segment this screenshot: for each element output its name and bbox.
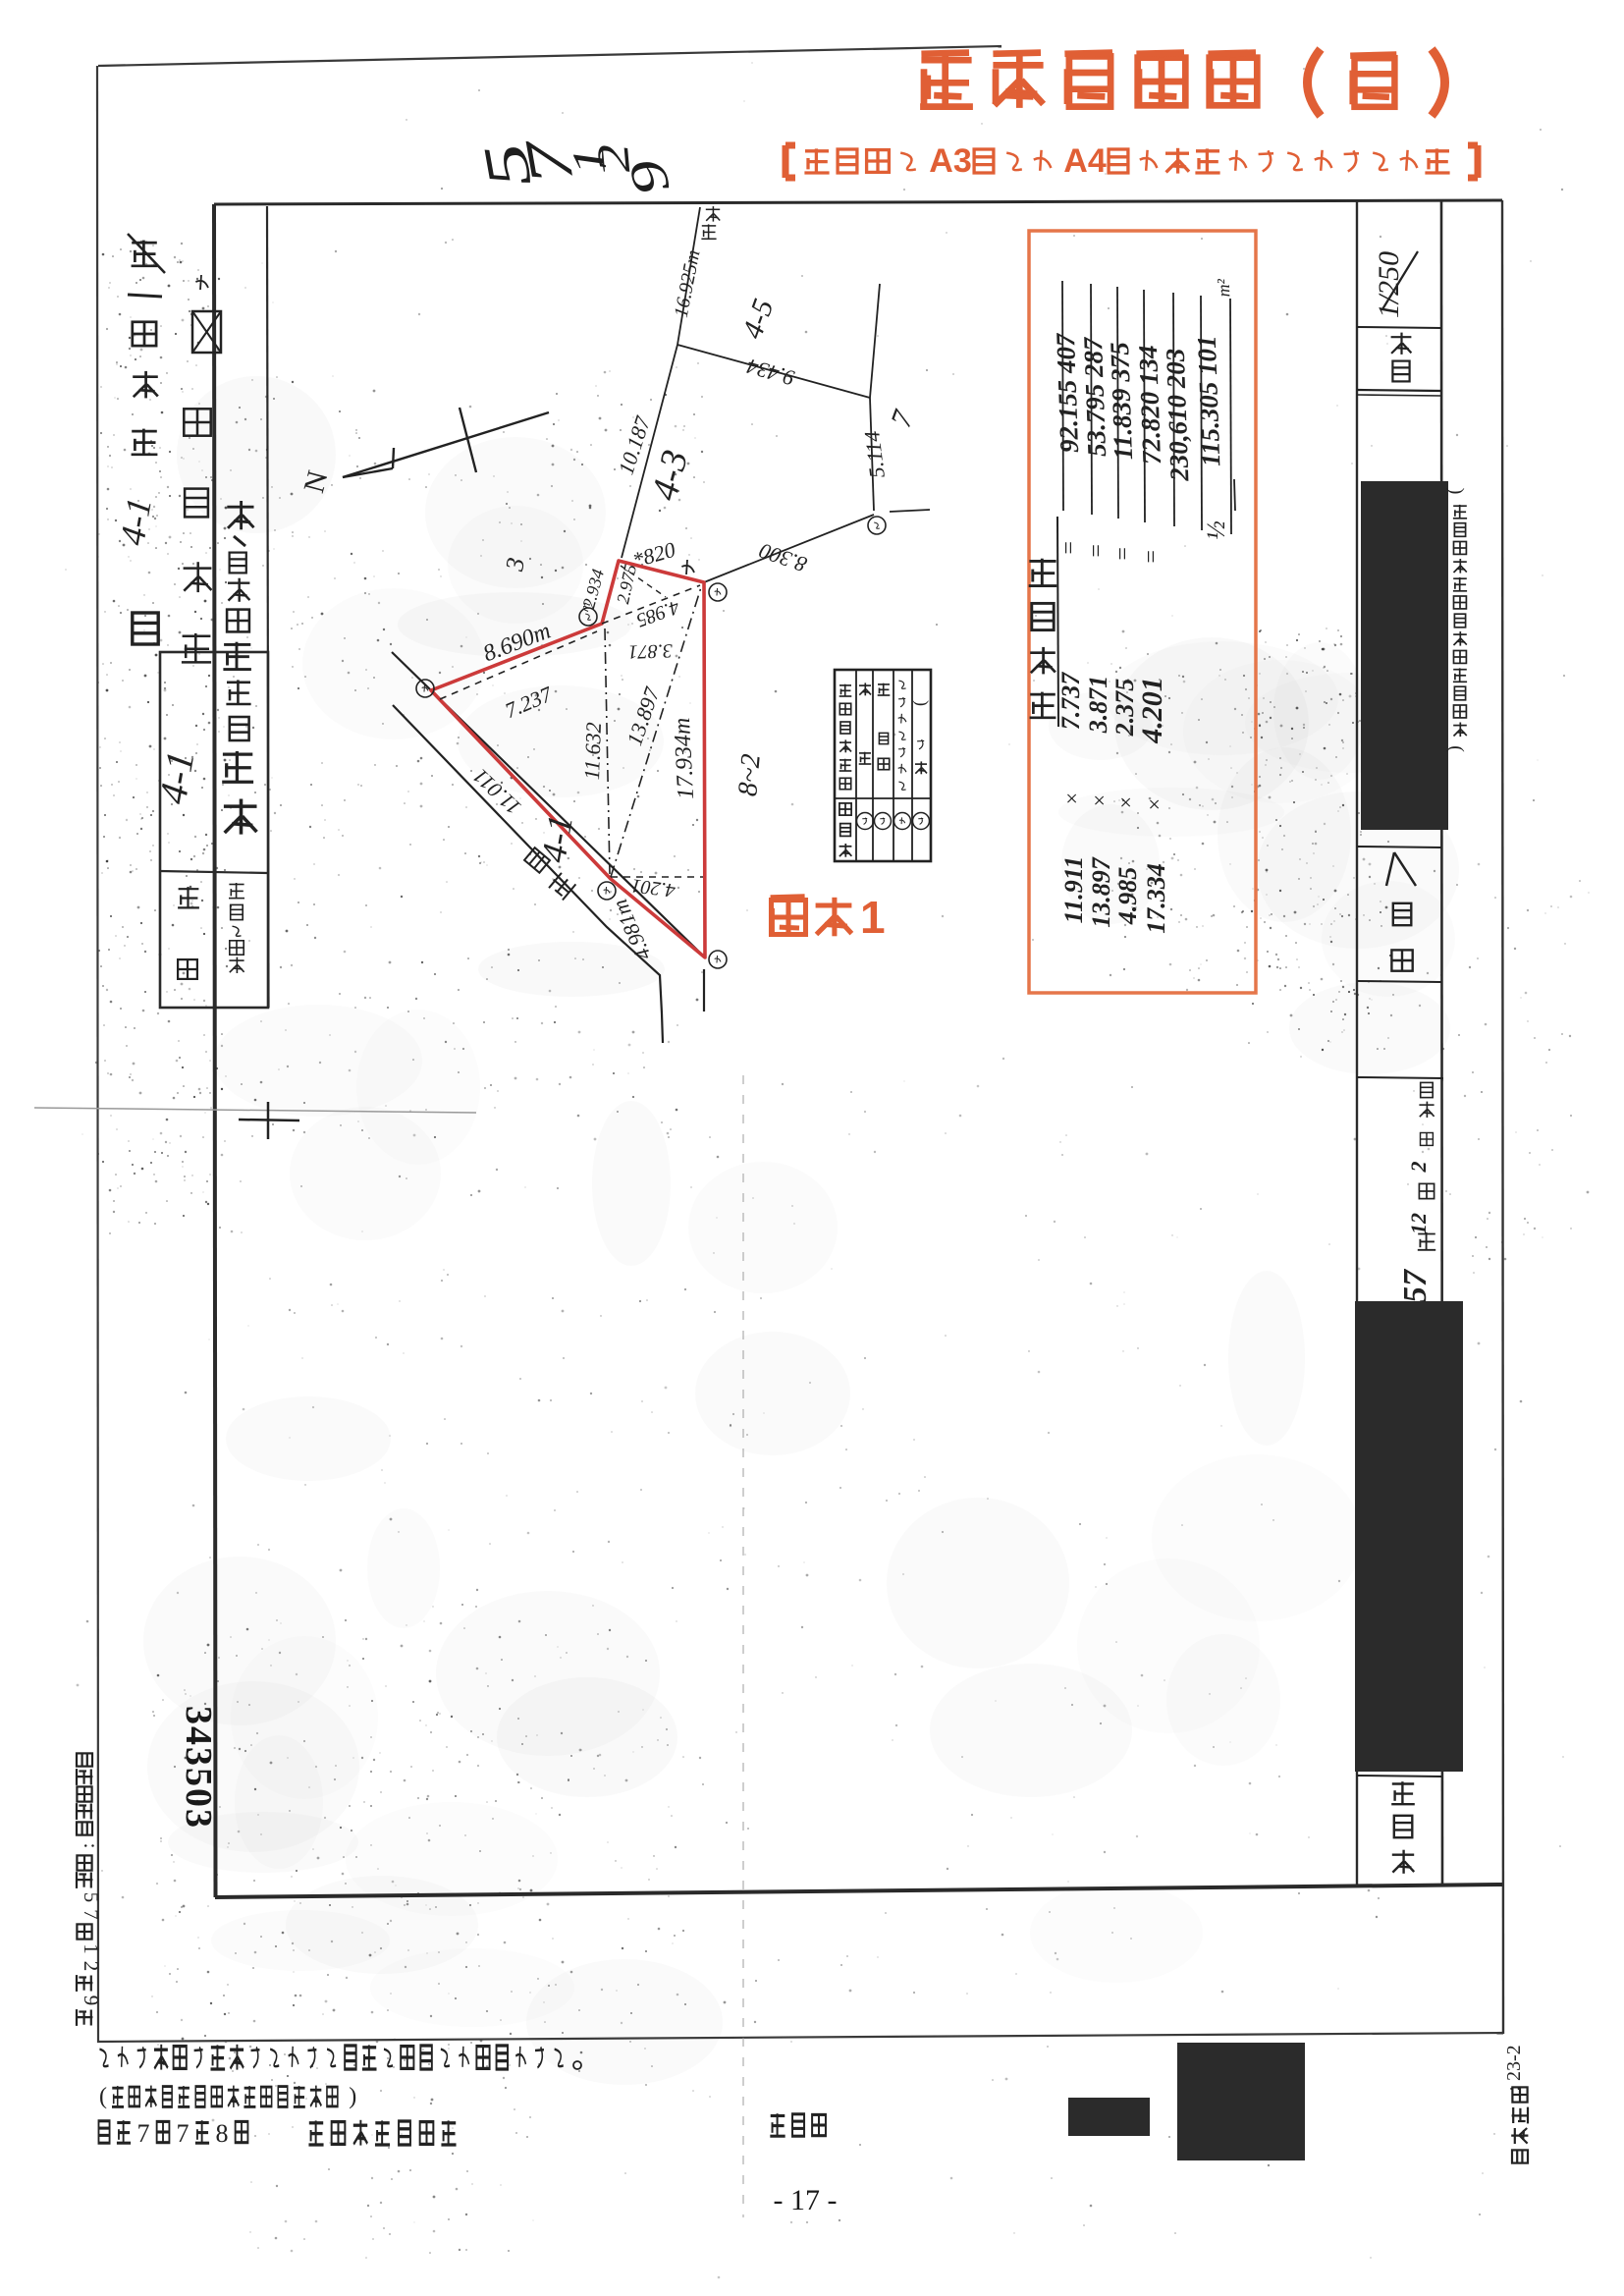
svg-text:7: 7 xyxy=(885,405,921,431)
svg-text:7: 7 xyxy=(177,2119,189,2148)
svg-text:=: = xyxy=(1139,549,1164,565)
svg-text:11.911: 11.911 xyxy=(1059,856,1088,924)
svg-text:4-1: 4-1 xyxy=(112,495,159,548)
svg-text:5.114: 5.114 xyxy=(859,430,890,480)
svg-text:8~2: 8~2 xyxy=(732,752,767,797)
svg-text:2.375: 2.375 xyxy=(1110,679,1139,738)
svg-text:8: 8 xyxy=(216,2119,229,2148)
svg-text:115.305 101: 115.305 101 xyxy=(1192,335,1226,466)
svg-text:9.434: 9.434 xyxy=(744,354,797,391)
svg-text:½: ½ xyxy=(1202,520,1230,540)
svg-text:: 23-2: : 23-2 xyxy=(1503,2045,1525,2091)
svg-text:4-5: 4-5 xyxy=(736,295,781,343)
svg-text:7.737: 7.737 xyxy=(1056,672,1085,731)
svg-text:7: 7 xyxy=(137,2119,150,2148)
svg-text:×: × xyxy=(1087,794,1111,806)
svg-text:4.985: 4.985 xyxy=(1113,867,1142,926)
svg-text:4.201: 4.201 xyxy=(1136,677,1168,744)
svg-text:): ) xyxy=(1443,745,1465,752)
svg-text:343503: 343503 xyxy=(178,1706,219,1830)
svg-text:×: × xyxy=(1113,796,1138,808)
svg-text:): ) xyxy=(349,2084,356,2109)
svg-text:A3: A3 xyxy=(929,142,971,180)
svg-text:3.871: 3.871 xyxy=(627,639,674,663)
svg-text:2: 2 xyxy=(1406,1162,1431,1174)
svg-text:12: 12 xyxy=(1406,1213,1431,1234)
svg-text:4-1: 4-1 xyxy=(150,747,203,806)
svg-text:230,610 203: 230,610 203 xyxy=(1161,348,1195,482)
svg-text:2: 2 xyxy=(80,1961,103,1972)
svg-text:1: 1 xyxy=(80,1943,103,1954)
svg-text:4.985: 4.985 xyxy=(633,596,682,631)
svg-text:m²: m² xyxy=(1214,278,1234,298)
svg-text:16.925m: 16.925m xyxy=(671,248,705,319)
svg-text:9: 9 xyxy=(80,1995,103,2006)
svg-text:A4: A4 xyxy=(1063,142,1107,180)
svg-text:7: 7 xyxy=(80,1909,103,1920)
svg-text::: : xyxy=(80,1843,103,1849)
svg-text:4-3: 4-3 xyxy=(644,446,697,505)
svg-text:4-1: 4-1 xyxy=(533,812,580,865)
svg-text:=: = xyxy=(1084,543,1110,559)
svg-text:1/250: 1/250 xyxy=(1373,251,1405,318)
svg-text:×: × xyxy=(1059,793,1084,804)
svg-text:=: = xyxy=(1110,546,1136,562)
svg-text:11.632: 11.632 xyxy=(579,722,606,781)
svg-text:8.300: 8.300 xyxy=(756,538,810,577)
svg-text:(: ( xyxy=(909,700,930,706)
svg-text:×: × xyxy=(1142,798,1166,810)
svg-text:(: ( xyxy=(99,2084,107,2109)
svg-text:(: ( xyxy=(1443,487,1465,494)
svg-text:3.871: 3.871 xyxy=(1084,676,1112,735)
svg-text:4.201: 4.201 xyxy=(630,874,677,901)
svg-text:1: 1 xyxy=(860,892,886,943)
svg-text:57: 57 xyxy=(1397,1268,1434,1303)
svg-text:5: 5 xyxy=(80,1892,103,1903)
svg-text:=: = xyxy=(1056,540,1082,556)
svg-text:17.334: 17.334 xyxy=(1142,863,1170,934)
svg-text:- 17 -: - 17 - xyxy=(774,2184,838,2216)
svg-text:13.897: 13.897 xyxy=(1087,856,1115,928)
svg-text:17.934m: 17.934m xyxy=(670,717,699,800)
